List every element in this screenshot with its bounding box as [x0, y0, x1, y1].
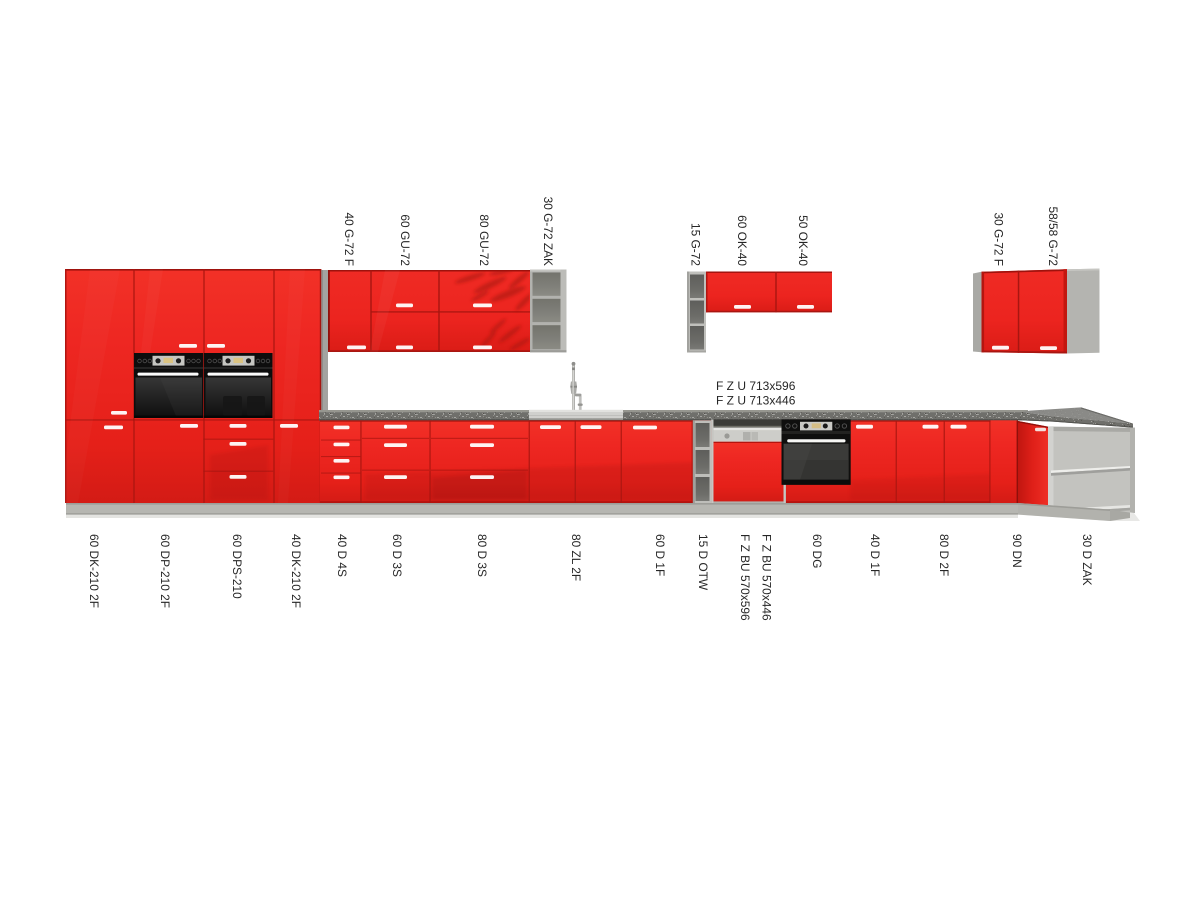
svg-text:F Z BU 570x446: F Z BU 570x446 — [759, 534, 773, 621]
svg-text:40 D 1F: 40 D 1F — [868, 534, 882, 576]
svg-text:60 DG: 60 DG — [810, 534, 824, 568]
svg-text:60 DP-210 2F: 60 DP-210 2F — [158, 534, 172, 608]
svg-text:60 OK-40: 60 OK-40 — [735, 215, 749, 266]
svg-text:60 DK-210 2F: 60 DK-210 2F — [87, 534, 101, 608]
svg-text:40 G-72 F: 40 G-72 F — [342, 212, 356, 266]
svg-text:F Z U 713x446: F Z U 713x446 — [716, 394, 796, 408]
svg-text:50 OK-40: 50 OK-40 — [796, 215, 810, 266]
svg-text:F Z U 713x596: F Z U 713x596 — [716, 379, 796, 393]
svg-text:60 D 3S: 60 D 3S — [390, 534, 404, 577]
svg-text:F Z BU 570x596: F Z BU 570x596 — [738, 534, 752, 621]
svg-text:15 D OTW: 15 D OTW — [696, 534, 710, 591]
svg-text:80 ZL 2F: 80 ZL 2F — [569, 534, 583, 581]
svg-text:80 GU-72: 80 GU-72 — [477, 214, 491, 266]
svg-text:80 D 2F: 80 D 2F — [937, 534, 951, 576]
svg-text:60 D 1F: 60 D 1F — [653, 534, 667, 576]
svg-text:15 G-72: 15 G-72 — [688, 223, 702, 266]
svg-text:30 D ZAK: 30 D ZAK — [1080, 534, 1094, 586]
svg-text:40 D 4S: 40 D 4S — [335, 534, 349, 577]
svg-text:30 G-72 ZAK: 30 G-72 ZAK — [541, 197, 555, 266]
svg-text:90 DN: 90 DN — [1010, 534, 1024, 568]
svg-text:60 DPS-210: 60 DPS-210 — [230, 534, 244, 599]
svg-text:80 D 3S: 80 D 3S — [475, 534, 489, 577]
svg-text:30 G-72 F: 30 G-72 F — [991, 212, 1005, 266]
svg-text:60 GU-72: 60 GU-72 — [398, 214, 412, 266]
svg-text:40 DK-210 2F: 40 DK-210 2F — [289, 534, 303, 608]
svg-text:58/58 G-72: 58/58 G-72 — [1046, 207, 1060, 267]
